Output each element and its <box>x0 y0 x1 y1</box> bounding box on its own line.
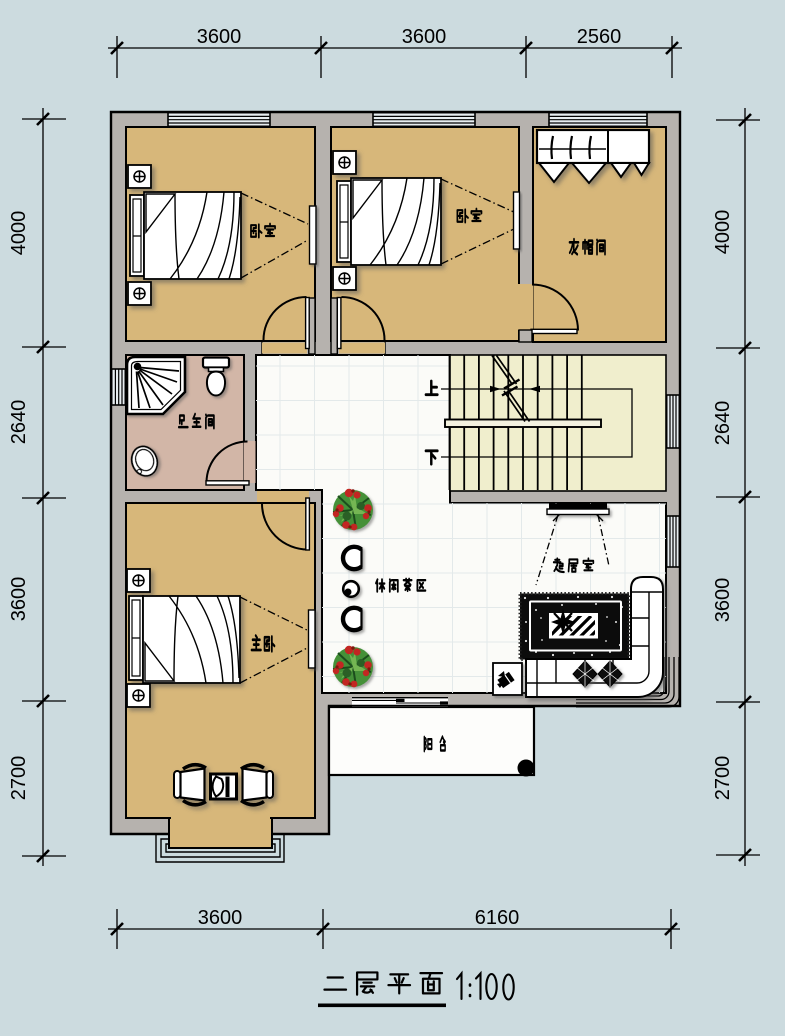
svg-text:3600: 3600 <box>8 577 30 622</box>
svg-text:3600: 3600 <box>712 578 734 623</box>
svg-text:3600: 3600 <box>402 26 447 48</box>
svg-text:2700: 2700 <box>712 756 734 801</box>
svg-text:2640: 2640 <box>8 400 30 445</box>
svg-text:6160: 6160 <box>475 907 520 929</box>
svg-text:3600: 3600 <box>197 26 242 48</box>
svg-text:2560: 2560 <box>577 26 622 48</box>
svg-text:3600: 3600 <box>198 907 243 929</box>
svg-text:4000: 4000 <box>712 210 734 255</box>
svg-text:2700: 2700 <box>8 756 30 801</box>
svg-text:2640: 2640 <box>712 401 734 446</box>
svg-text:4000: 4000 <box>8 211 30 256</box>
